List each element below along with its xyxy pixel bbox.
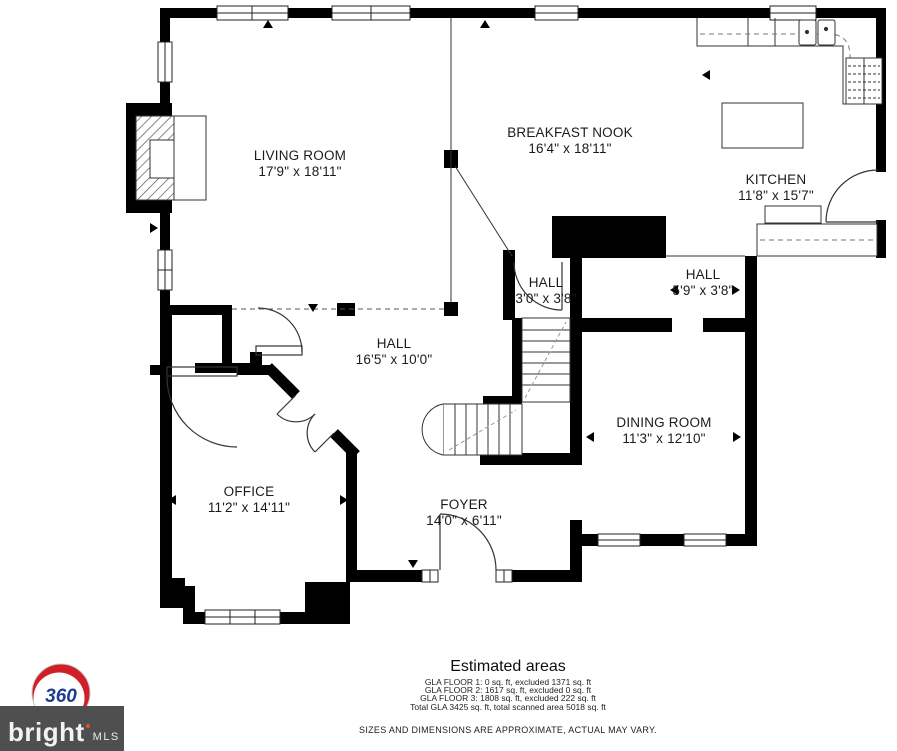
room-name: KITCHEN	[738, 172, 814, 188]
kitchen-island	[722, 103, 803, 148]
trademark-dot	[86, 724, 90, 728]
room-dimensions: 14'0" x 6'11"	[426, 513, 502, 529]
room-name: OFFICE	[208, 484, 290, 500]
badge-360-text: 360	[45, 686, 77, 707]
french-doors	[307, 414, 315, 452]
closet-door-leaf	[256, 346, 302, 355]
room-label-hall-right: HALL 5'9" x 3'8"	[672, 267, 733, 299]
room-name: BREAKFAST NOOK	[507, 125, 633, 141]
brand-suffix-text: MLS	[93, 731, 120, 744]
room-label-kitchen: KITCHEN 11'8" x 15'7"	[738, 172, 814, 204]
room-dimensions: 3'0" x 3'8"	[515, 291, 576, 307]
room-dimensions: 11'3" x 12'10"	[616, 431, 711, 447]
estimated-areas-title: Estimated areas	[110, 657, 897, 676]
brand-name-text: bright	[8, 720, 85, 744]
room-name: LIVING ROOM	[254, 148, 346, 164]
appliance	[765, 206, 821, 223]
room-label-hall-main: HALL 16'5" x 10'0"	[356, 336, 433, 368]
room-label-breakfast-nook: BREAKFAST NOOK 16'4" x 18'11"	[507, 125, 633, 157]
room-dimensions: 16'5" x 10'0"	[356, 352, 433, 368]
office-door-arc	[167, 377, 237, 447]
branding-area: 360 bright MLS	[0, 660, 130, 751]
hearth	[174, 116, 206, 200]
kitchen-door-arc	[826, 170, 878, 222]
room-name: DINING ROOM	[616, 415, 711, 431]
room-dimensions: 16'4" x 18'11"	[507, 141, 633, 157]
fireplace	[136, 116, 206, 200]
room-label-foyer: FOYER 14'0" x 6'11"	[426, 497, 502, 529]
estimated-areas-block: Estimated areas GLA FLOOR 1: 0 sq. ft, e…	[110, 657, 897, 735]
room-dimensions: 5'9" x 3'8"	[672, 283, 733, 299]
floorplan-canvas: LIVING ROOM 17'9" x 18'11" BREAKFAST NOO…	[0, 0, 897, 751]
gla-total: Total GLA 3425 sq. ft, total scanned are…	[110, 703, 897, 711]
room-dimensions: 17'9" x 18'11"	[254, 164, 346, 180]
kitchen-fixtures	[666, 18, 882, 256]
room-label-hall-small: HALL 3'0" x 3'8"	[515, 275, 576, 307]
room-dimensions: 11'8" x 15'7"	[738, 188, 814, 204]
disclaimer-text: SIZES AND DIMENSIONS ARE APPROXIMATE, AC…	[110, 725, 897, 735]
room-label-dining-room: DINING ROOM 11'3" x 12'10"	[616, 415, 711, 447]
office-angled-wall	[268, 367, 356, 455]
staircase	[422, 318, 570, 455]
stair-newel-curve	[422, 404, 443, 455]
room-name: HALL	[356, 336, 433, 352]
room-label-living-room: LIVING ROOM 17'9" x 18'11"	[254, 148, 346, 180]
closet-door-arc	[258, 308, 302, 352]
windows	[158, 6, 816, 624]
room-name: HALL	[515, 275, 576, 291]
walls	[126, 8, 886, 624]
room-dimensions: 11'2" x 14'11"	[208, 500, 290, 516]
room-label-office: OFFICE 11'2" x 14'11"	[208, 484, 290, 516]
room-name: FOYER	[426, 497, 502, 513]
room-name: HALL	[672, 267, 733, 283]
floorplan-drawing	[0, 0, 897, 751]
brightmls-logo: bright MLS	[0, 706, 124, 751]
